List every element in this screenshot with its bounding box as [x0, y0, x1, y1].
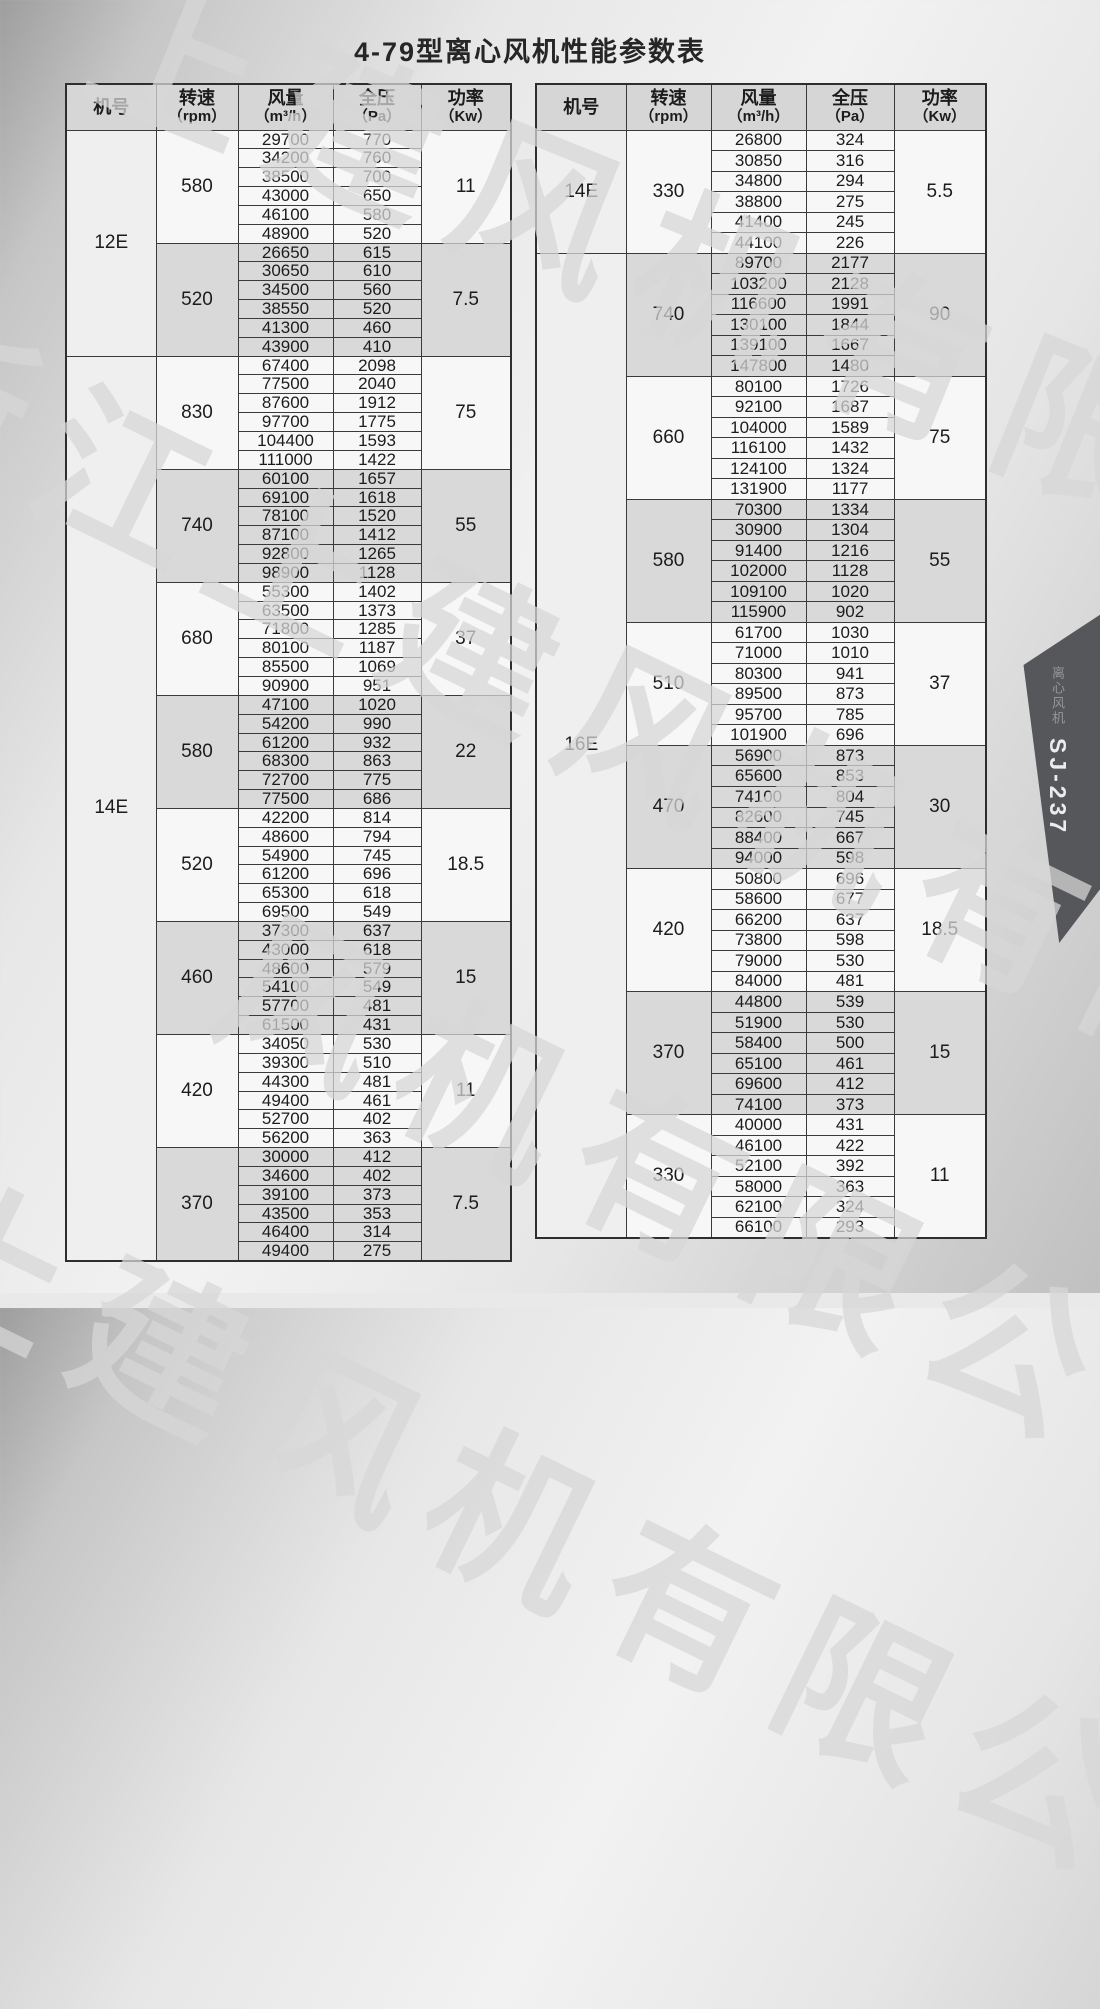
speed-cell: 660 [626, 376, 711, 499]
header-speed: 转速（rpm） [156, 84, 238, 130]
volume-cell: 101900 [711, 725, 806, 746]
pressure-cell: 510 [333, 1053, 421, 1072]
power-cell: 90 [894, 253, 986, 376]
volume-cell: 102000 [711, 561, 806, 582]
volume-cell: 111000 [238, 450, 333, 469]
volume-cell: 55300 [238, 582, 333, 601]
volume-cell: 54200 [238, 714, 333, 733]
tab-vertical-label: 离心风机 [1048, 666, 1067, 726]
volume-cell: 38800 [711, 192, 806, 213]
pressure-cell: 412 [806, 1074, 894, 1095]
pressure-cell: 1128 [806, 561, 894, 582]
volume-cell: 92800 [238, 545, 333, 564]
pressure-cell: 410 [333, 337, 421, 356]
volume-cell: 56200 [238, 1129, 333, 1148]
volume-cell: 84000 [711, 971, 806, 992]
pressure-cell: 667 [806, 828, 894, 849]
volume-cell: 66200 [711, 910, 806, 931]
power-cell: 15 [894, 992, 986, 1115]
volume-cell: 72700 [238, 771, 333, 790]
volume-cell: 43000 [238, 940, 333, 959]
volume-cell: 30000 [238, 1148, 333, 1167]
pressure-cell: 530 [806, 1012, 894, 1033]
power-cell: 5.5 [894, 130, 986, 253]
speed-cell: 370 [156, 1148, 238, 1262]
model-cell: 16E [536, 253, 626, 1238]
volume-cell: 74100 [711, 787, 806, 808]
volume-cell: 38550 [238, 300, 333, 319]
pressure-cell: 853 [806, 766, 894, 787]
pressure-cell: 1304 [806, 520, 894, 541]
side-page-tab: 离心风机 SJ-237 [1015, 608, 1100, 943]
speed-cell: 420 [626, 869, 711, 992]
volume-cell: 87100 [238, 526, 333, 545]
pressure-cell: 804 [806, 787, 894, 808]
volume-cell: 78100 [238, 507, 333, 526]
pressure-cell: 560 [333, 281, 421, 300]
pressure-cell: 696 [806, 725, 894, 746]
pressure-cell: 316 [806, 151, 894, 172]
pressure-cell: 1618 [333, 488, 421, 507]
volume-cell: 62100 [711, 1197, 806, 1218]
volume-cell: 43900 [238, 337, 333, 356]
pressure-cell: 1667 [806, 335, 894, 356]
pressure-cell: 618 [333, 884, 421, 903]
volume-cell: 44300 [238, 1072, 333, 1091]
volume-cell: 43500 [238, 1204, 333, 1223]
volume-cell: 73800 [711, 930, 806, 951]
pressure-cell: 402 [333, 1110, 421, 1129]
pressure-cell: 363 [333, 1129, 421, 1148]
volume-cell: 39100 [238, 1185, 333, 1204]
volume-cell: 88400 [711, 828, 806, 849]
speed-cell: 520 [156, 243, 238, 356]
volume-cell: 50800 [711, 869, 806, 890]
power-cell: 55 [421, 469, 511, 582]
speed-cell: 370 [626, 992, 711, 1115]
volume-cell: 41400 [711, 212, 806, 233]
pressure-cell: 1187 [333, 639, 421, 658]
volume-cell: 90900 [238, 676, 333, 695]
header-pressure: 全压（Pa） [806, 84, 894, 130]
pressure-cell: 1010 [806, 643, 894, 664]
volume-cell: 147800 [711, 356, 806, 377]
speed-cell: 740 [626, 253, 711, 376]
pressure-cell: 873 [806, 684, 894, 705]
volume-cell: 70300 [711, 499, 806, 520]
power-cell: 55 [894, 499, 986, 622]
pressure-cell: 539 [806, 992, 894, 1013]
pressure-cell: 1480 [806, 356, 894, 377]
pressure-cell: 275 [333, 1242, 421, 1261]
volume-cell: 49400 [238, 1242, 333, 1261]
pressure-cell: 293 [806, 1217, 894, 1238]
pressure-cell: 294 [806, 171, 894, 192]
volume-cell: 65600 [711, 766, 806, 787]
speed-cell: 330 [626, 130, 711, 253]
pressure-cell: 1520 [333, 507, 421, 526]
volume-cell: 61500 [238, 1016, 333, 1035]
volume-cell: 95700 [711, 704, 806, 725]
volume-cell: 130100 [711, 315, 806, 336]
volume-cell: 46100 [711, 1135, 806, 1156]
volume-cell: 30850 [711, 151, 806, 172]
pressure-cell: 951 [333, 676, 421, 695]
pressure-cell: 775 [333, 771, 421, 790]
pressure-cell: 598 [806, 930, 894, 951]
volume-cell: 30650 [238, 262, 333, 281]
volume-cell: 44800 [711, 992, 806, 1013]
pressure-cell: 990 [333, 714, 421, 733]
pressure-cell: 598 [806, 848, 894, 869]
pressure-cell: 412 [333, 1148, 421, 1167]
volume-cell: 34500 [238, 281, 333, 300]
pressure-cell: 1334 [806, 499, 894, 520]
volume-cell: 67400 [238, 356, 333, 375]
volume-cell: 82600 [711, 807, 806, 828]
pressure-cell: 637 [333, 921, 421, 940]
pressure-cell: 1432 [806, 438, 894, 459]
volume-cell: 48900 [238, 224, 333, 243]
volume-cell: 56900 [711, 745, 806, 766]
pressure-cell: 2098 [333, 356, 421, 375]
pressure-cell: 1069 [333, 658, 421, 677]
pressure-cell: 1991 [806, 294, 894, 315]
pressure-cell: 696 [333, 865, 421, 884]
pressure-cell: 422 [806, 1135, 894, 1156]
pressure-cell: 520 [333, 300, 421, 319]
power-cell: 22 [421, 695, 511, 808]
header-power: 功率（Kw） [894, 84, 986, 130]
volume-cell: 89500 [711, 684, 806, 705]
volume-cell: 104400 [238, 432, 333, 451]
volume-cell: 43000 [238, 187, 333, 206]
pressure-cell: 1687 [806, 397, 894, 418]
volume-cell: 98900 [238, 563, 333, 582]
power-cell: 7.5 [421, 243, 511, 356]
pressure-cell: 373 [333, 1185, 421, 1204]
header-power: 功率（Kw） [421, 84, 511, 130]
pressure-cell: 481 [333, 1072, 421, 1091]
volume-cell: 65100 [711, 1053, 806, 1074]
pressure-cell: 580 [333, 205, 421, 224]
header-volume: 风量（m³/h） [711, 84, 806, 130]
header-volume: 风量（m³/h） [238, 84, 333, 130]
volume-cell: 30900 [711, 520, 806, 541]
power-cell: 30 [894, 745, 986, 868]
pressure-cell: 932 [333, 733, 421, 752]
volume-cell: 79000 [711, 951, 806, 972]
power-cell: 15 [421, 921, 511, 1034]
bottom-band [0, 1293, 1100, 1308]
pressure-cell: 1177 [806, 479, 894, 500]
volume-cell: 54100 [238, 978, 333, 997]
volume-cell: 34200 [238, 149, 333, 168]
power-cell: 75 [894, 376, 986, 499]
pressure-cell: 314 [333, 1223, 421, 1242]
speed-cell: 580 [626, 499, 711, 622]
volume-cell: 34600 [238, 1166, 333, 1185]
volume-cell: 26650 [238, 243, 333, 262]
pressure-cell: 579 [333, 959, 421, 978]
volume-cell: 58600 [711, 889, 806, 910]
volume-cell: 48600 [238, 959, 333, 978]
pressure-cell: 814 [333, 808, 421, 827]
volume-cell: 139100 [711, 335, 806, 356]
pressure-cell: 677 [806, 889, 894, 910]
pressure-cell: 461 [806, 1053, 894, 1074]
pressure-cell: 461 [333, 1091, 421, 1110]
pressure-cell: 1412 [333, 526, 421, 545]
pressure-cell: 696 [806, 869, 894, 890]
pressure-cell: 1020 [806, 581, 894, 602]
speed-cell: 680 [156, 582, 238, 695]
pressure-cell: 1775 [333, 413, 421, 432]
volume-cell: 58000 [711, 1176, 806, 1197]
pressure-cell: 1593 [333, 432, 421, 451]
model-cell: 14E [536, 130, 626, 253]
volume-cell: 54900 [238, 846, 333, 865]
volume-cell: 61200 [238, 865, 333, 884]
pressure-cell: 2040 [333, 375, 421, 394]
volume-cell: 37300 [238, 921, 333, 940]
volume-cell: 115900 [711, 602, 806, 623]
volume-cell: 58400 [711, 1033, 806, 1054]
pressure-cell: 324 [806, 130, 894, 151]
pressure-cell: 745 [333, 846, 421, 865]
pressure-cell: 1726 [806, 376, 894, 397]
volume-cell: 40000 [711, 1115, 806, 1136]
volume-cell: 39300 [238, 1053, 333, 1072]
volume-cell: 48600 [238, 827, 333, 846]
pressure-cell: 520 [333, 224, 421, 243]
pressure-cell: 1844 [806, 315, 894, 336]
pressure-cell: 615 [333, 243, 421, 262]
pressure-cell: 481 [333, 997, 421, 1016]
pressure-cell: 1373 [333, 601, 421, 620]
pressure-cell: 1912 [333, 394, 421, 413]
tab-code-label: SJ-237 [1044, 738, 1071, 836]
pressure-cell: 686 [333, 790, 421, 809]
model-cell: 12E [66, 130, 156, 356]
pressure-cell: 873 [806, 745, 894, 766]
pressure-cell: 1030 [806, 622, 894, 643]
speed-cell: 520 [156, 808, 238, 921]
header-speed: 转速（rpm） [626, 84, 711, 130]
volume-cell: 44100 [711, 233, 806, 254]
header-pressure: 全压（Pa） [333, 84, 421, 130]
pressure-cell: 431 [333, 1016, 421, 1035]
power-cell: 11 [421, 130, 511, 243]
volume-cell: 61200 [238, 733, 333, 752]
pressure-cell: 1422 [333, 450, 421, 469]
pressure-cell: 863 [333, 752, 421, 771]
power-cell: 18.5 [421, 808, 511, 921]
volume-cell: 66100 [711, 1217, 806, 1238]
volume-cell: 124100 [711, 458, 806, 479]
volume-cell: 104000 [711, 417, 806, 438]
speed-cell: 580 [156, 695, 238, 808]
parameters-table: 机号转速（rpm）风量（m³/h）全压（Pa）功率（Kw）14E33026800… [535, 83, 987, 1239]
speed-cell: 470 [626, 745, 711, 868]
pressure-cell: 1324 [806, 458, 894, 479]
page-title: 4-79型离心风机性能参数表 [0, 30, 1060, 69]
pressure-cell: 637 [806, 910, 894, 931]
pressure-cell: 460 [333, 318, 421, 337]
volume-cell: 38500 [238, 168, 333, 187]
volume-cell: 41300 [238, 318, 333, 337]
volume-cell: 26800 [711, 130, 806, 151]
pressure-cell: 530 [806, 951, 894, 972]
speed-cell: 580 [156, 130, 238, 243]
pressure-cell: 245 [806, 212, 894, 233]
pressure-cell: 2128 [806, 274, 894, 295]
model-cell: 14E [66, 356, 156, 1261]
pressure-cell: 785 [806, 704, 894, 725]
pressure-cell: 794 [333, 827, 421, 846]
pressure-cell: 1020 [333, 695, 421, 714]
volume-cell: 89700 [711, 253, 806, 274]
pressure-cell: 481 [806, 971, 894, 992]
volume-cell: 69600 [711, 1074, 806, 1095]
pressure-cell: 530 [333, 1035, 421, 1054]
pressure-cell: 549 [333, 978, 421, 997]
pressure-cell: 2177 [806, 253, 894, 274]
volume-cell: 85500 [238, 658, 333, 677]
volume-cell: 80300 [711, 663, 806, 684]
pressure-cell: 324 [806, 1197, 894, 1218]
pressure-cell: 902 [806, 602, 894, 623]
volume-cell: 131900 [711, 479, 806, 500]
volume-cell: 61700 [711, 622, 806, 643]
pressure-cell: 650 [333, 187, 421, 206]
pressure-cell: 226 [806, 233, 894, 254]
volume-cell: 46100 [238, 205, 333, 224]
volume-cell: 34800 [711, 171, 806, 192]
volume-cell: 51900 [711, 1012, 806, 1033]
power-cell: 75 [421, 356, 511, 469]
header-model: 机号 [66, 84, 156, 130]
volume-cell: 116100 [711, 438, 806, 459]
volume-cell: 34050 [238, 1035, 333, 1054]
pressure-cell: 770 [333, 130, 421, 149]
power-cell: 11 [894, 1115, 986, 1238]
volume-cell: 60100 [238, 469, 333, 488]
pressure-cell: 760 [333, 149, 421, 168]
volume-cell: 29700 [238, 130, 333, 149]
volume-cell: 42200 [238, 808, 333, 827]
volume-cell: 69100 [238, 488, 333, 507]
volume-cell: 77500 [238, 790, 333, 809]
volume-cell: 91400 [711, 540, 806, 561]
pressure-cell: 373 [806, 1094, 894, 1115]
header-model: 机号 [536, 84, 626, 130]
pressure-cell: 275 [806, 192, 894, 213]
pressure-cell: 1402 [333, 582, 421, 601]
pressure-cell: 353 [333, 1204, 421, 1223]
volume-cell: 49400 [238, 1091, 333, 1110]
speed-cell: 740 [156, 469, 238, 582]
power-cell: 37 [421, 582, 511, 695]
power-cell: 11 [421, 1035, 511, 1148]
volume-cell: 47100 [238, 695, 333, 714]
pressure-cell: 1589 [806, 417, 894, 438]
volume-cell: 68300 [238, 752, 333, 771]
pressure-cell: 1216 [806, 540, 894, 561]
volume-cell: 69500 [238, 903, 333, 922]
pressure-cell: 431 [806, 1115, 894, 1136]
pressure-cell: 700 [333, 168, 421, 187]
pressure-cell: 1285 [333, 620, 421, 639]
speed-cell: 510 [626, 622, 711, 745]
volume-cell: 77500 [238, 375, 333, 394]
pressure-cell: 745 [806, 807, 894, 828]
volume-cell: 109100 [711, 581, 806, 602]
volume-cell: 74100 [711, 1094, 806, 1115]
volume-cell: 80100 [711, 376, 806, 397]
pressure-cell: 1657 [333, 469, 421, 488]
volume-cell: 103200 [711, 274, 806, 295]
volume-cell: 65300 [238, 884, 333, 903]
power-cell: 18.5 [894, 869, 986, 992]
volume-cell: 116600 [711, 294, 806, 315]
volume-cell: 46400 [238, 1223, 333, 1242]
speed-cell: 330 [626, 1115, 711, 1238]
pressure-cell: 392 [806, 1156, 894, 1177]
power-cell: 37 [894, 622, 986, 745]
pressure-cell: 941 [806, 663, 894, 684]
pressure-cell: 402 [333, 1166, 421, 1185]
pressure-cell: 1265 [333, 545, 421, 564]
pressure-cell: 610 [333, 262, 421, 281]
volume-cell: 80100 [238, 639, 333, 658]
volume-cell: 71800 [238, 620, 333, 639]
volume-cell: 52700 [238, 1110, 333, 1129]
parameters-table: 机号转速（rpm）风量（m³/h）全压（Pa）功率（Kw）12E58029700… [65, 83, 512, 1262]
volume-cell: 63500 [238, 601, 333, 620]
pressure-cell: 549 [333, 903, 421, 922]
pressure-cell: 1128 [333, 563, 421, 582]
volume-cell: 87600 [238, 394, 333, 413]
volume-cell: 94000 [711, 848, 806, 869]
speed-cell: 460 [156, 921, 238, 1034]
performance-table-right: 机号转速（rpm）风量（m³/h）全压（Pa）功率（Kw）14E33026800… [535, 83, 987, 1239]
volume-cell: 57700 [238, 997, 333, 1016]
volume-cell: 92100 [711, 397, 806, 418]
volume-cell: 97700 [238, 413, 333, 432]
performance-table-left: 机号转速（rpm）风量（m³/h）全压（Pa）功率（Kw）12E58029700… [65, 83, 512, 1262]
volume-cell: 71000 [711, 643, 806, 664]
speed-cell: 830 [156, 356, 238, 469]
volume-cell: 52100 [711, 1156, 806, 1177]
speed-cell: 420 [156, 1035, 238, 1148]
pressure-cell: 618 [333, 940, 421, 959]
power-cell: 7.5 [421, 1148, 511, 1262]
pressure-cell: 500 [806, 1033, 894, 1054]
pressure-cell: 363 [806, 1176, 894, 1197]
